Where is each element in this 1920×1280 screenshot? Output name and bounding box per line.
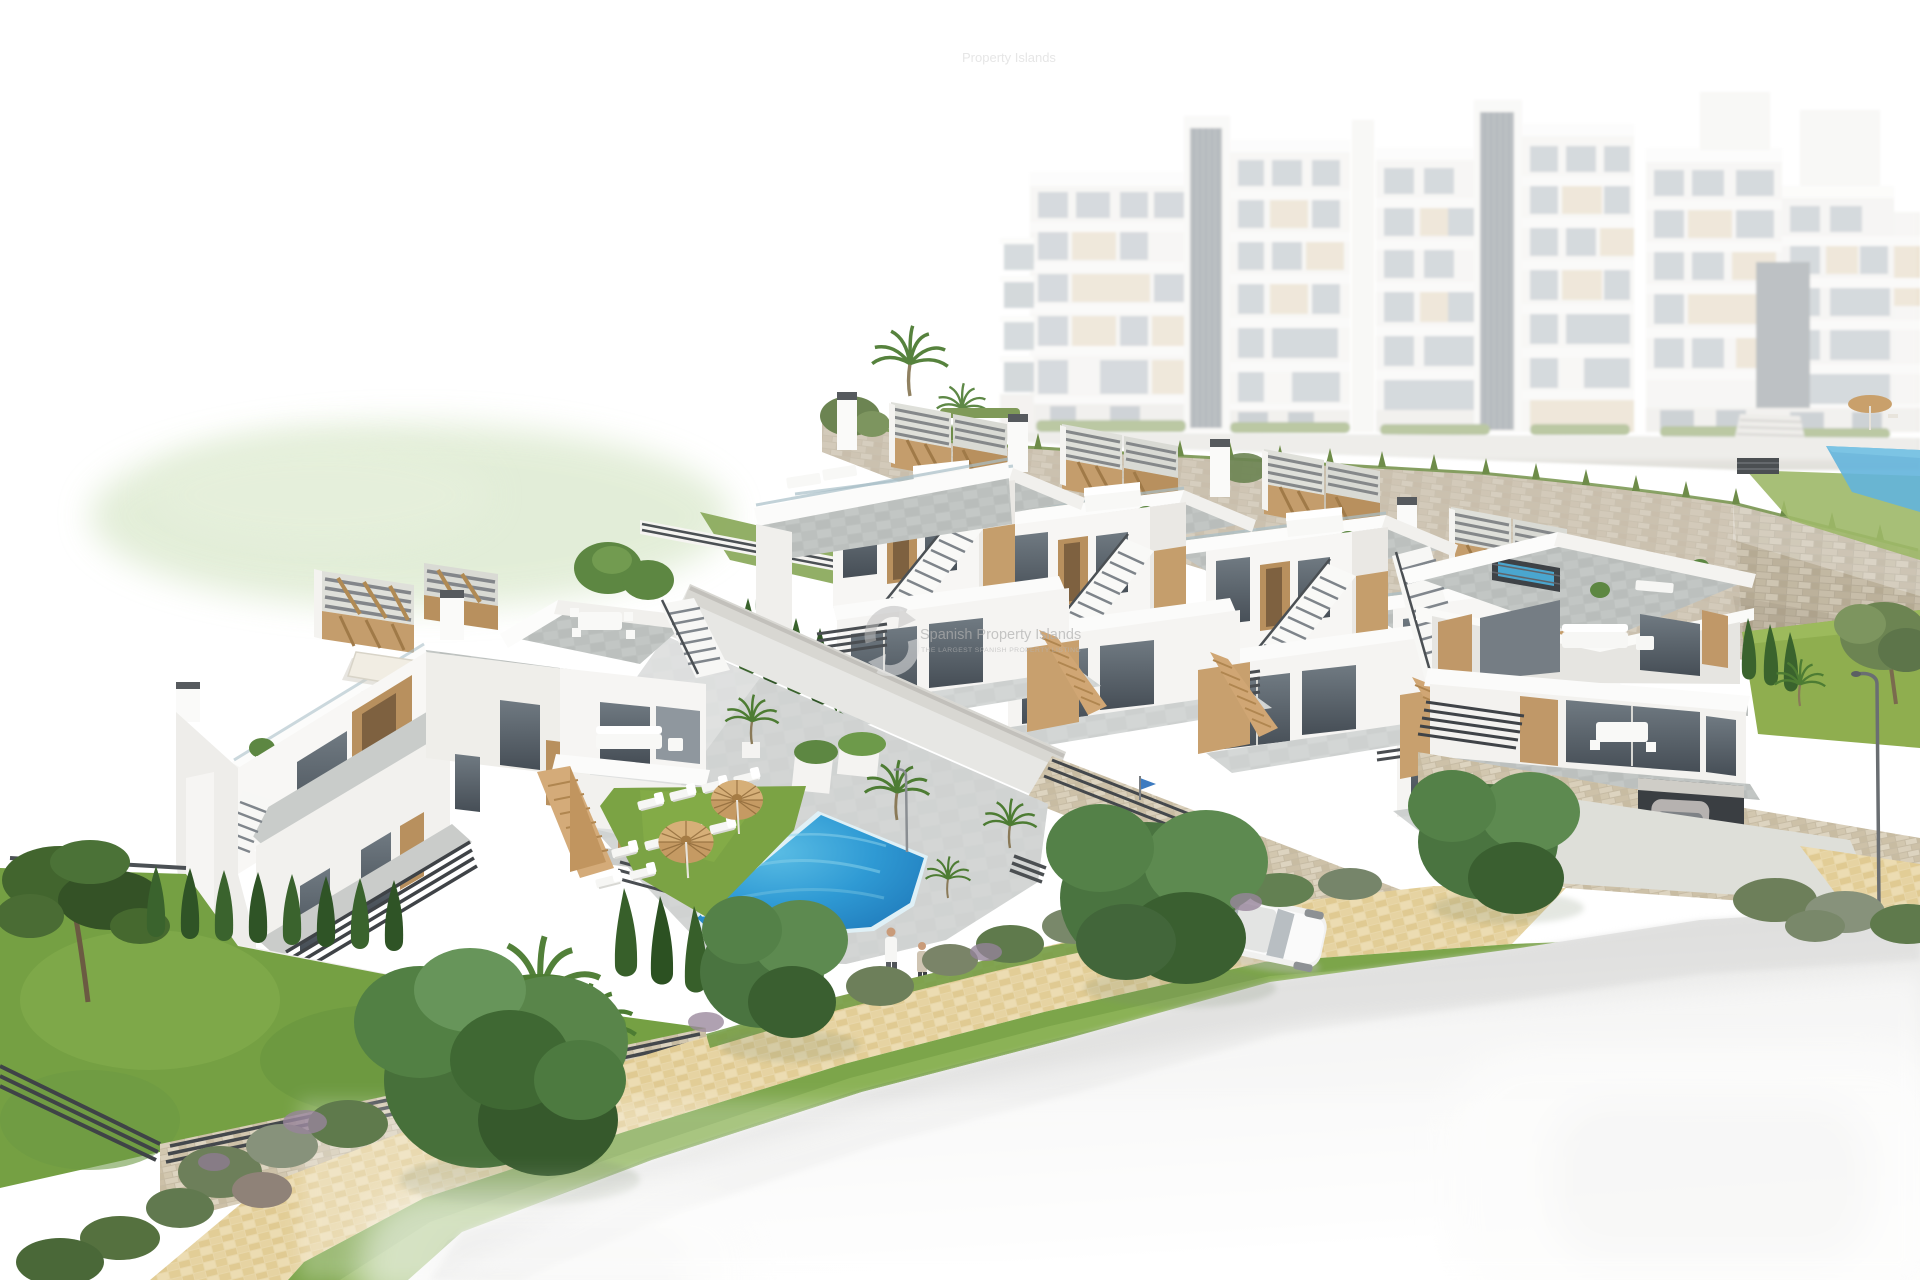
svg-text:THE LARGEST SPANISH PROPERTY L: THE LARGEST SPANISH PROPERTY LISTING [921, 647, 1081, 654]
svg-text:Spanish Property Islands: Spanish Property Islands [920, 627, 1081, 643]
svg-text:Property Islands: Property Islands [962, 50, 1056, 65]
